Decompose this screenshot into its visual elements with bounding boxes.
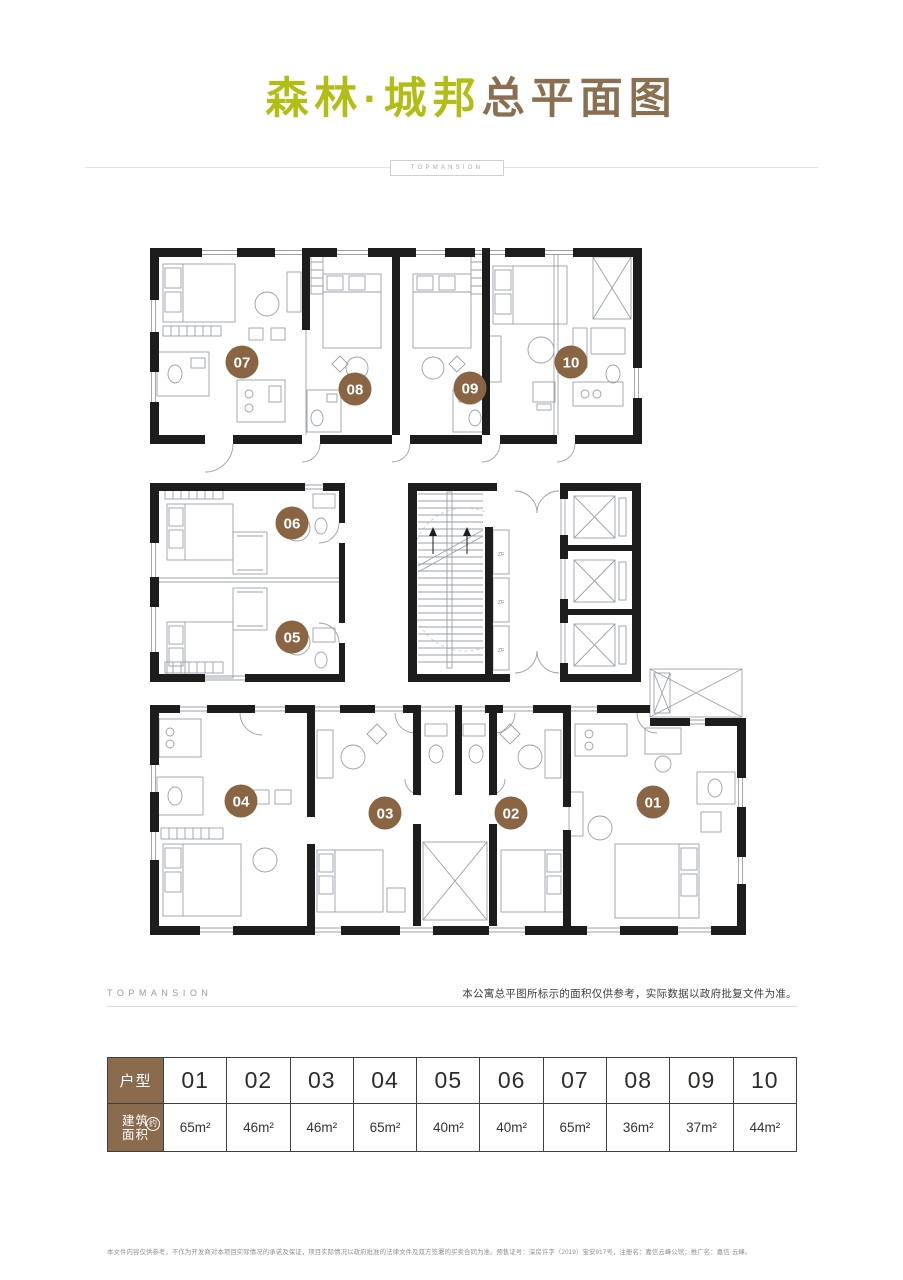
svg-text:01: 01 xyxy=(645,794,662,811)
svg-text:09: 09 xyxy=(462,380,479,397)
svg-text:07: 07 xyxy=(234,354,251,371)
svg-text:06: 06 xyxy=(284,515,301,532)
svg-text:08: 08 xyxy=(347,381,364,398)
table-unit-09: 09 xyxy=(669,1058,732,1103)
table-area-06: 40m² xyxy=(479,1103,542,1151)
svg-text:05: 05 xyxy=(284,629,301,646)
table-area-07: 65m² xyxy=(543,1103,606,1151)
svg-text:ZF: ZF xyxy=(498,648,505,654)
floor-plan: ZFZFZF 07080910060504030201 xyxy=(145,232,765,952)
unit-badge-05: 05 xyxy=(276,621,309,654)
table-unit-05: 05 xyxy=(416,1058,479,1103)
svg-text:03: 03 xyxy=(377,805,394,822)
table-area-01: 65m² xyxy=(163,1103,226,1151)
unit-area-table: 户型 01020304050607080910 建筑 面积 约 65m²46m²… xyxy=(107,1057,797,1152)
unit-badge-09: 09 xyxy=(454,372,487,405)
footer-brand-en: TOPMANSION xyxy=(107,988,212,998)
svg-text:ZF: ZF xyxy=(498,600,505,606)
page-title: 森林·城邦总平面图 xyxy=(0,74,903,124)
unit-badge-03: 03 xyxy=(369,797,402,830)
title-suffix: 总平面图 xyxy=(482,75,678,123)
table-unit-04: 04 xyxy=(353,1058,416,1103)
table-unit-01: 01 xyxy=(163,1058,226,1103)
table-unit-06: 06 xyxy=(479,1058,542,1103)
table-unit-10: 10 xyxy=(733,1058,796,1103)
table-unit-03: 03 xyxy=(290,1058,353,1103)
plan-note: 本公寓总平图所标示的面积仅供参考，实际数据以政府批复文件为准。 xyxy=(462,986,797,1001)
core-shaft-labels: ZFZFZF xyxy=(498,552,505,654)
table-row-unit-type: 户型 01020304050607080910 xyxy=(108,1058,796,1103)
unit-badge-07: 07 xyxy=(226,346,259,379)
unit-badge-04: 04 xyxy=(225,785,258,818)
table-area-10: 44m² xyxy=(733,1103,796,1151)
table-unit-02: 02 xyxy=(226,1058,289,1103)
unit-badge-08: 08 xyxy=(339,373,372,406)
table-unit-07: 07 xyxy=(543,1058,606,1103)
area-header-line1: 建筑 xyxy=(122,1114,149,1128)
table-header-area-text: 建筑 面积 xyxy=(122,1114,149,1142)
footer-divider-line xyxy=(107,1006,797,1007)
approx-badge: 约 xyxy=(146,1117,160,1131)
unit-badge-02: 02 xyxy=(495,797,528,830)
unit-badge-01: 01 xyxy=(637,786,670,819)
table-area-08: 36m² xyxy=(606,1103,669,1151)
table-header-unit-type: 户型 xyxy=(108,1058,163,1103)
svg-text:02: 02 xyxy=(503,805,520,822)
svg-text:04: 04 xyxy=(233,793,250,810)
table-unit-08: 08 xyxy=(606,1058,669,1103)
title-brand: 森林·城邦 xyxy=(265,75,481,123)
floor-plan-svg: ZFZFZF 07080910060504030201 xyxy=(145,232,765,952)
fine-print-disclaimer: 本文件内容仅供参考，不作为开发商对本项目实际情况的承诺及保证，项目实际情况以政府… xyxy=(107,1247,799,1256)
table-header-area: 建筑 面积 约 xyxy=(108,1103,163,1151)
page: 森林·城邦总平面图 TOPMANSION xyxy=(0,0,903,1280)
table-area-02: 46m² xyxy=(226,1103,289,1151)
area-header-line2: 面积 xyxy=(122,1128,149,1142)
unit-badge-06: 06 xyxy=(276,507,309,540)
table-area-04: 65m² xyxy=(353,1103,416,1151)
unit-badge-10: 10 xyxy=(555,346,588,379)
table-area-05: 40m² xyxy=(416,1103,479,1151)
svg-text:ZF: ZF xyxy=(498,552,505,558)
table-area-03: 46m² xyxy=(290,1103,353,1151)
table-area-09: 37m² xyxy=(669,1103,732,1151)
svg-text:10: 10 xyxy=(563,354,580,371)
brand-en-box: TOPMANSION xyxy=(390,160,504,176)
table-row-area: 建筑 面积 约 65m²46m²46m²65m²40m²40m²65m²36m²… xyxy=(108,1103,796,1151)
